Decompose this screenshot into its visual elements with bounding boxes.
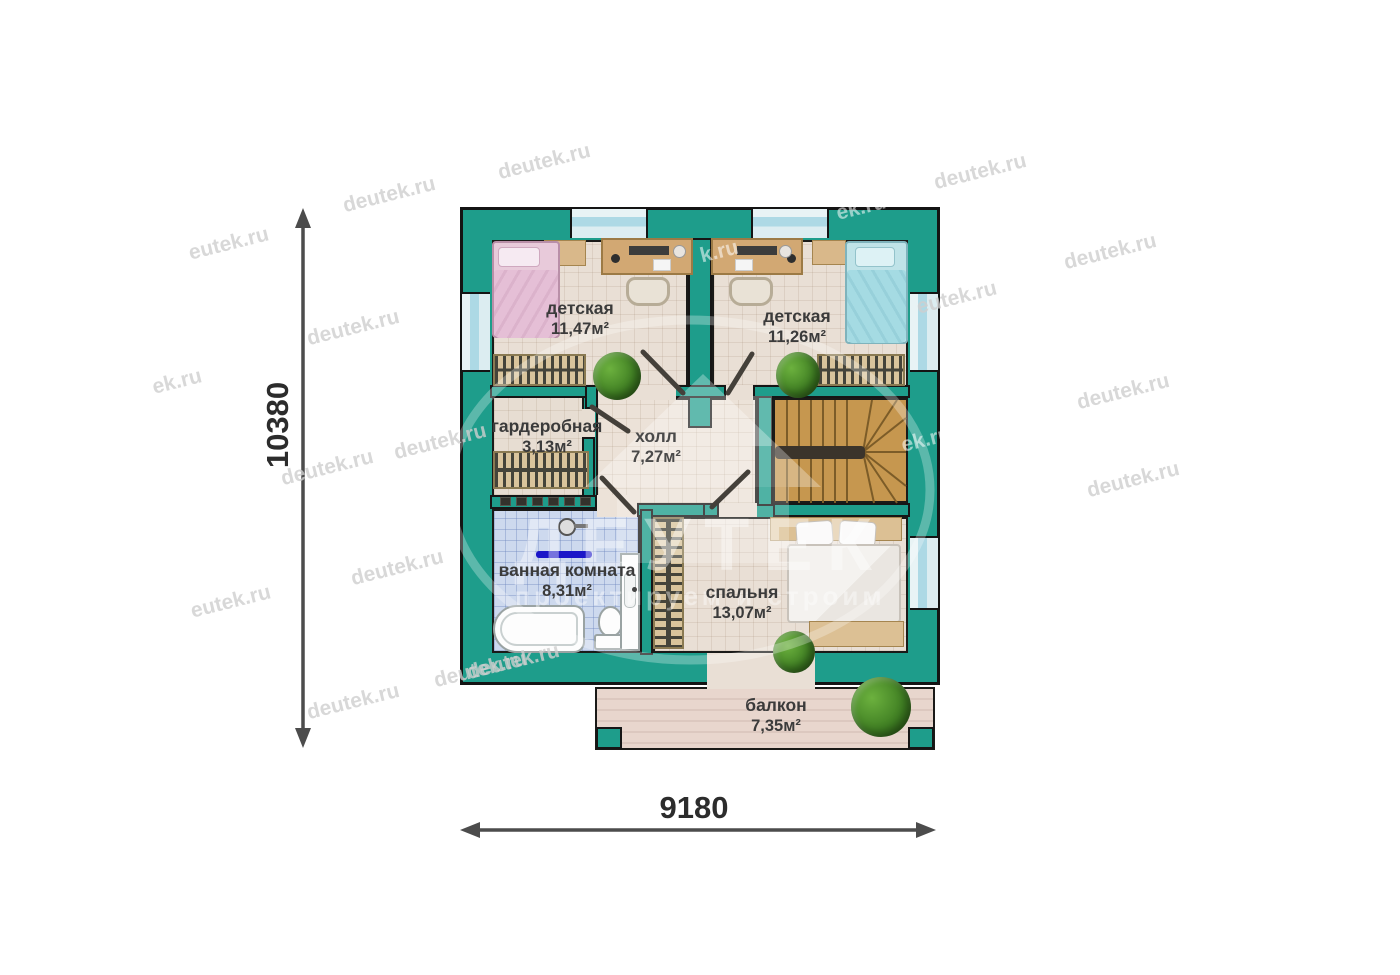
bathtub-basin	[500, 612, 578, 646]
room-label-hall: холл 7,27м²	[586, 426, 726, 467]
window-left	[462, 292, 490, 372]
dimension-label-horizontal: 9180	[644, 790, 744, 826]
pillow-icon	[855, 247, 895, 267]
room-name: детская	[510, 298, 650, 319]
plant-icon	[851, 677, 911, 737]
wall-kids1-bottom	[490, 385, 598, 398]
watermark-text: deutek.ru	[305, 305, 403, 351]
watermark-text: deutek.ru	[1062, 229, 1160, 275]
plant-icon	[773, 631, 815, 673]
laptop-icon	[737, 246, 777, 255]
balcony-post-left	[596, 727, 622, 749]
plant-icon	[593, 352, 641, 400]
chair-icon	[729, 277, 773, 306]
laptop-icon	[629, 246, 669, 255]
watermark-text: deutek.ru	[496, 139, 594, 185]
room-name: спальня	[672, 582, 812, 603]
room-label-bedroom: спальня 13,07м²	[672, 582, 812, 623]
wall-kids2-bottom	[753, 385, 910, 398]
window-top-left	[570, 209, 648, 238]
watermark-text: eutek.ru	[186, 222, 271, 265]
room-name: холл	[586, 426, 726, 447]
room-label-kids1: детская 11,47м²	[510, 298, 650, 339]
room-area: 7,35м²	[706, 716, 846, 736]
watermark-text: eutek.ru	[188, 580, 273, 623]
plant-icon	[776, 352, 820, 398]
watermark-text: deutek.ru	[932, 149, 1030, 195]
room-area: 8,31м²	[477, 581, 657, 601]
dimension-label-vertical: 10380	[260, 380, 294, 470]
room-label-bathroom: ванная комната 8,31м²	[477, 560, 657, 601]
wall-stairs-divider	[757, 396, 773, 506]
radiator-icon	[493, 354, 586, 386]
room-area: 11,47м²	[510, 319, 650, 339]
room-area: 13,07м²	[672, 603, 812, 623]
floorplan-canvas: ДЕУТЕК проектируем и строим детская 11,4…	[0, 0, 1400, 975]
room-name: балкон	[706, 695, 846, 716]
room-name: ванная комната	[477, 560, 657, 581]
stairwell-floor	[773, 398, 908, 503]
window-top-right	[751, 209, 829, 238]
room-label-balcony: балкон 7,35м²	[706, 695, 846, 736]
room-label-kids2: детская 11,26м²	[727, 306, 867, 347]
room-area: 7,27м²	[586, 447, 726, 467]
lamp-icon	[611, 254, 620, 263]
speaker-icon	[673, 245, 686, 258]
watermark-text: deutek.ru	[1075, 369, 1173, 415]
room-area: 11,26м²	[727, 327, 867, 347]
watermark-text: deutek.ru	[349, 545, 447, 591]
door-opening-kids2	[726, 385, 753, 400]
balcony-post-right	[908, 727, 934, 749]
paper-icon	[735, 259, 753, 271]
watermark-text: ek.ru	[150, 364, 205, 399]
wall-crossbar	[674, 385, 726, 398]
speaker-icon	[779, 245, 792, 258]
room-name: детская	[727, 306, 867, 327]
bed-bench	[809, 621, 904, 647]
paper-icon	[653, 259, 671, 271]
watermark-text: deutek.ru	[341, 172, 439, 218]
pillow-icon	[498, 247, 540, 267]
watermark-text: deutek.ru	[1085, 457, 1183, 503]
radiator-icon	[817, 354, 905, 386]
watermark-text: deutek.ru	[305, 679, 403, 725]
desk-icon	[601, 238, 693, 275]
shelf-icon	[812, 240, 846, 265]
